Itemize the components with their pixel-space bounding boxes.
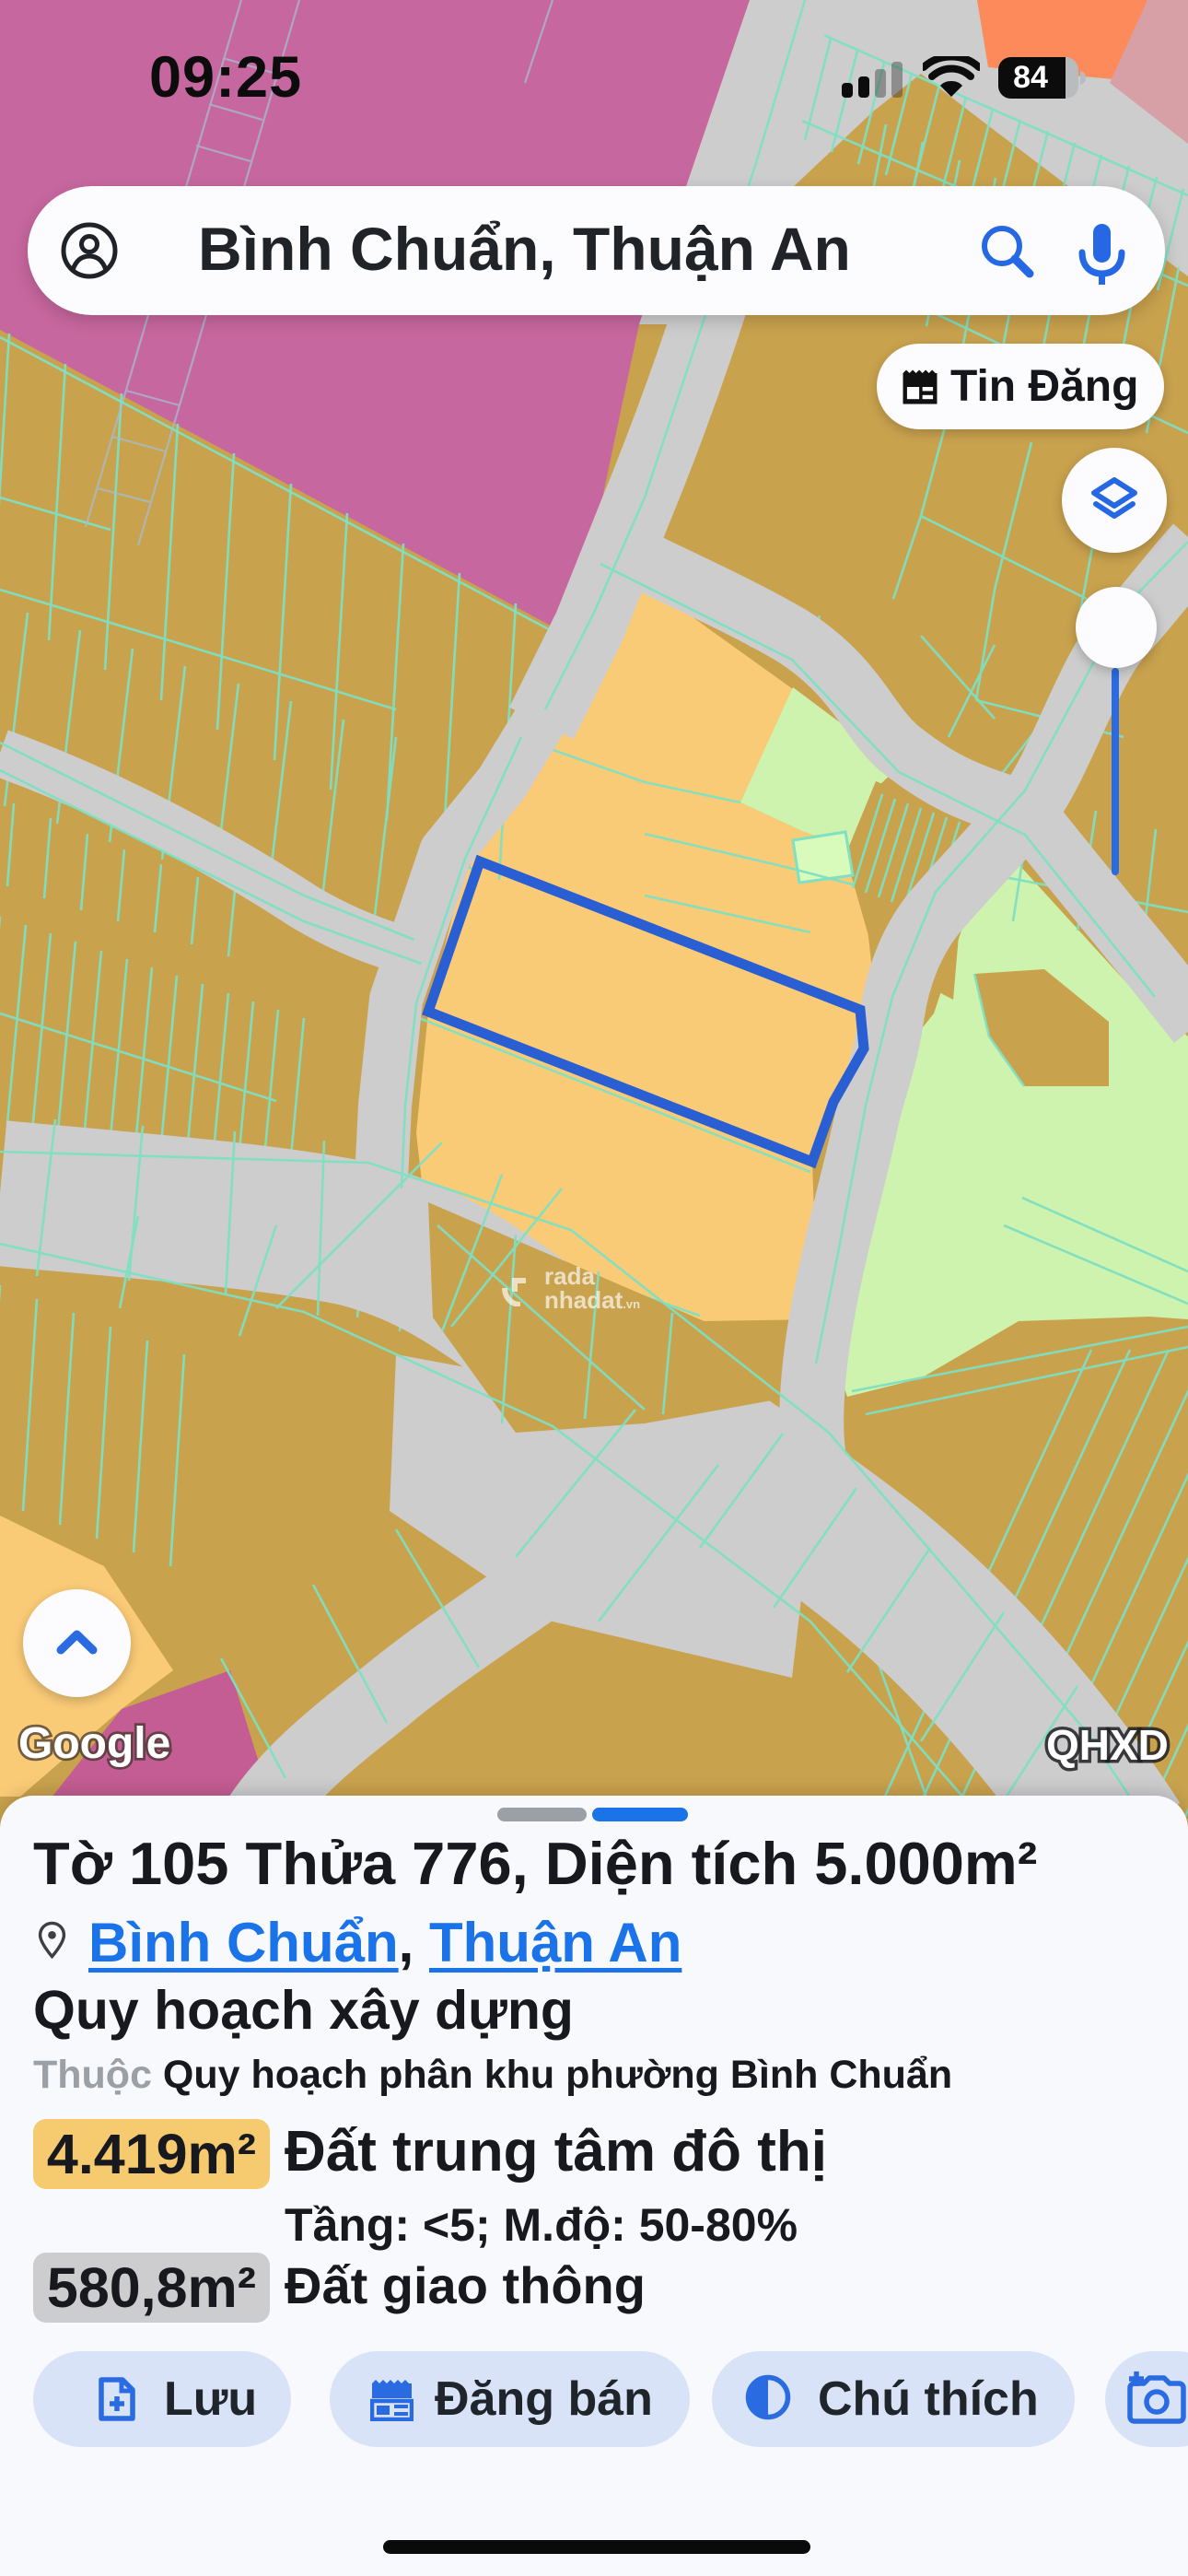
svg-text:84: 84: [1013, 60, 1048, 95]
